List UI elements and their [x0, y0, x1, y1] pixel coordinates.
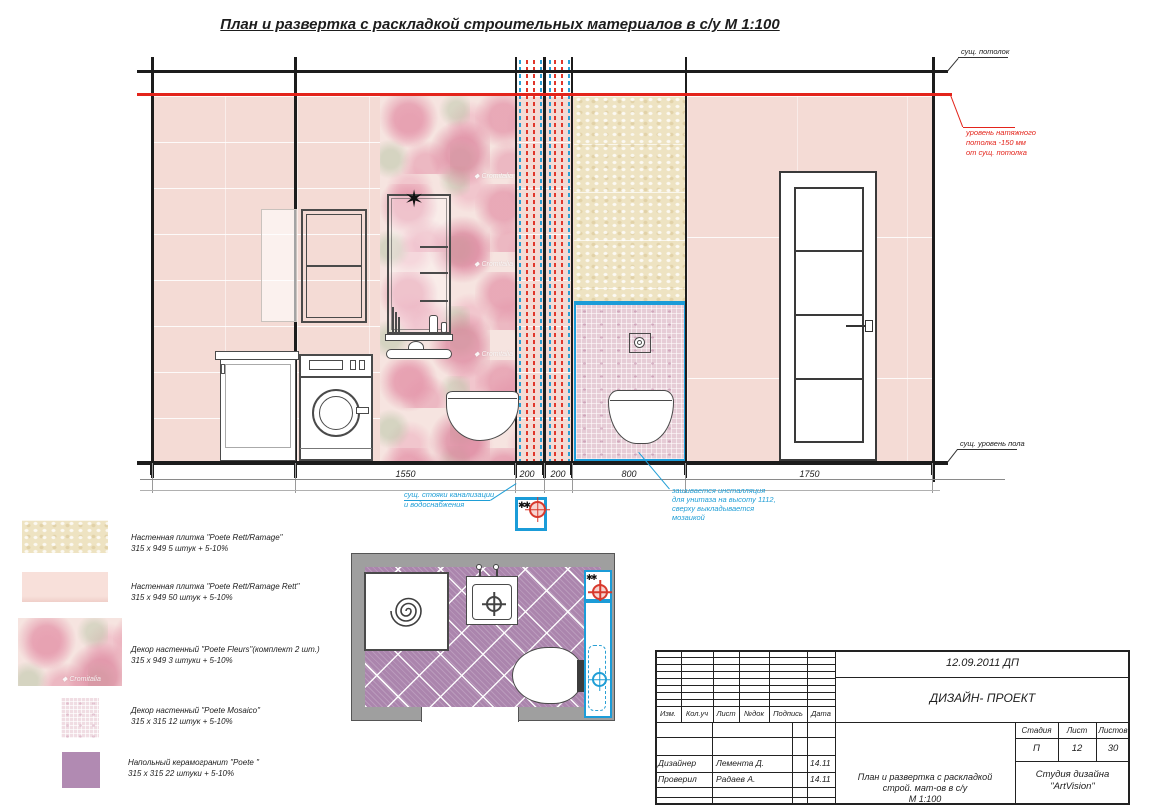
wall-cabinet-shelf	[307, 265, 361, 267]
tb-studio-name: Студия дизайна	[1015, 770, 1130, 781]
tb-studio-name: "ArtVision"	[1015, 782, 1130, 793]
legend-label: Декор настенный "Poete Mosaico"	[131, 706, 260, 715]
base-cabinet-handle	[221, 364, 225, 374]
tap-handle-icon	[476, 564, 482, 570]
plan-toilet	[512, 647, 584, 704]
tb-line	[655, 787, 835, 788]
toilet-rim-line	[610, 400, 672, 401]
mirror-shelf-line	[420, 272, 448, 274]
blue-target-icon	[592, 672, 607, 687]
water-pipe-line	[549, 60, 551, 461]
tb-line	[1015, 761, 1130, 762]
toiletry-bottle	[429, 315, 438, 333]
door-panel-divider	[796, 314, 862, 316]
washer-door-inner	[319, 396, 353, 430]
tb-line	[835, 677, 1130, 678]
wall-axis-line	[932, 57, 935, 482]
stack-symbols-icon: ✱✱	[586, 574, 595, 582]
legend-qty: 315 x 315 12 штук + 5-10%	[131, 717, 233, 726]
legend-swatch-rett	[22, 572, 108, 602]
water-pipe-line	[540, 60, 542, 461]
riser-axis-line	[561, 60, 563, 461]
beige-tile-zone	[574, 96, 686, 301]
tap-stem	[496, 569, 498, 577]
water-pipe-line	[519, 60, 521, 461]
toiletry-bottle	[441, 322, 447, 333]
tb-sheet-label: Лист	[1058, 726, 1096, 735]
flush-button-inner	[637, 340, 642, 345]
tb-sheets-label: Листов	[1096, 726, 1130, 735]
tb-line	[655, 722, 1130, 723]
leader-line	[947, 58, 959, 72]
stretch-ceiling-note: уровень натяжного	[966, 129, 1036, 138]
leader-line	[958, 57, 1008, 58]
tb-designer-date: 14.11	[810, 759, 831, 769]
dim-label: 800	[572, 469, 686, 479]
tb-line	[655, 657, 835, 658]
tap-stem	[479, 569, 481, 577]
dimension-line	[140, 490, 940, 491]
toiletry-bottle	[398, 317, 400, 333]
tb-col-header: Изм.	[655, 710, 681, 719]
wall-axis-line	[685, 57, 687, 478]
tb-doc-title: строй. мат-ов в с/у	[835, 783, 1015, 793]
dim-label: 1750	[686, 469, 933, 479]
installation-note: мозаикой	[672, 514, 705, 523]
washer-drum-icon	[378, 583, 434, 639]
tb-line	[655, 706, 835, 707]
tb-col-header: №док	[739, 710, 769, 719]
sparkle-icon: ✶	[404, 186, 424, 214]
tap-handle-icon	[493, 564, 499, 570]
stretch-ceiling-note: потолка -150 мм	[966, 139, 1026, 148]
tb-line	[655, 685, 835, 686]
washer-button	[350, 360, 356, 370]
leader-line	[957, 449, 1017, 450]
toiletry-bottle	[392, 307, 394, 333]
door-handle-lever	[846, 325, 866, 327]
tb-line	[792, 722, 793, 805]
stacks-note: сущ. стояки канализации	[404, 491, 494, 500]
faucet-cross-icon	[486, 596, 502, 612]
dim-extension-line	[152, 463, 153, 493]
stretch-ceiling-line	[137, 93, 952, 96]
riser-axis-line	[533, 60, 535, 461]
stretch-ceiling-note: от сущ. потолка	[966, 149, 1027, 158]
base-cabinet-inner	[225, 364, 291, 448]
legend-qty: 315 x 949 50 штук + 5-10%	[131, 593, 233, 602]
tb-col-header: Лист	[713, 710, 739, 719]
dim-label: 1550	[295, 469, 516, 479]
legend-label: Настенная плитка "Poete Rett/Ramage Rett…	[131, 582, 299, 591]
wall-axis-line	[151, 57, 154, 478]
legend-swatch-mosaico	[61, 698, 99, 738]
tb-line	[655, 678, 835, 679]
legend-label: Напольный керамогранит "Poete "	[128, 758, 259, 767]
legend-label: Настенная плитка "Poete Rett/Ramage"	[131, 533, 283, 542]
tb-line	[655, 755, 835, 756]
leader-line-blue	[404, 500, 490, 501]
red-target-icon	[592, 584, 608, 600]
floor-note: сущ. уровень пола	[960, 440, 1025, 449]
mirror-inner	[391, 198, 447, 330]
tb-sheet-value: 12	[1058, 744, 1096, 755]
stacks-note: и водоснабжения	[404, 501, 464, 510]
tb-designer-role: Дизайнер	[658, 759, 696, 769]
tb-checker-role: Проверил	[658, 775, 697, 785]
drawing-sheet: План и развертка с раскладкой строительн…	[0, 0, 1155, 811]
tile-watermark: ◆ Cromitalia	[62, 675, 101, 683]
legend-qty: 315 x 949 5 штук + 5-10%	[131, 544, 228, 553]
washer-latch	[356, 407, 369, 414]
lower-shelf	[386, 349, 452, 359]
dim-label: 200	[544, 469, 572, 479]
page-title: План и развертка с раскладкой строительн…	[140, 16, 860, 33]
washer-panel-line	[300, 376, 372, 378]
tb-designer-name: Лемента Д.	[716, 759, 764, 769]
riser-axis-line	[526, 60, 528, 461]
tile-watermark: ◆ Cromitalia	[437, 172, 513, 180]
tb-stage-label: Стадия	[1015, 726, 1058, 735]
tb-line	[807, 650, 808, 805]
mirror-shelf-line	[420, 246, 448, 248]
tb-col-header: Подпись	[769, 710, 807, 719]
legend-qty: 315 x 315 22 штуки + 5-10%	[128, 769, 234, 778]
tb-line	[655, 772, 835, 773]
existing-ceiling-line	[137, 70, 948, 73]
washer-base-line	[300, 448, 372, 449]
washer-button	[359, 360, 365, 370]
red-target-icon	[529, 501, 546, 518]
tb-checker-date: 14.11	[810, 775, 831, 785]
tb-line	[655, 797, 835, 798]
plan-door-opening	[421, 707, 519, 722]
tb-project-name: ДИЗАЙН- ПРОЕКТ	[835, 692, 1130, 706]
tb-line	[655, 671, 835, 672]
wall-axis-line	[543, 57, 546, 478]
leader-line	[947, 449, 958, 462]
tb-line	[655, 699, 835, 700]
water-pipe-line	[568, 60, 570, 461]
legend-qty: 315 x 949 3 штуки + 5-10%	[131, 656, 233, 665]
tb-line	[712, 722, 713, 805]
riser-axis-line	[554, 60, 556, 461]
washer-display	[309, 360, 343, 370]
wall-panel	[261, 209, 297, 322]
tb-doc-title: План и развертка с раскладкой	[835, 772, 1015, 782]
tb-line	[655, 737, 835, 738]
tb-line	[655, 692, 835, 693]
door-handle-plate	[865, 320, 873, 332]
legend-label: Декор настенный "Poete Fleurs"(комплект …	[131, 645, 320, 654]
door-panel-divider	[796, 378, 862, 380]
tb-sheets-value: 30	[1096, 744, 1130, 755]
tb-checker-name: Радаев А.	[716, 775, 755, 785]
tb-col-header: Кол.уч	[681, 710, 713, 719]
wall-axis-line	[571, 57, 573, 478]
door-panel-divider	[796, 250, 862, 252]
leader-line-red	[950, 95, 963, 127]
washbasin-rim-line	[448, 398, 517, 399]
dim-label: 200	[510, 469, 544, 479]
toiletry-bottle	[395, 312, 397, 333]
tb-doc-title: М 1:100	[835, 794, 1015, 804]
tb-line	[1015, 738, 1130, 739]
legend-swatch-ramage	[22, 520, 108, 553]
mirror-shelf	[385, 334, 453, 341]
ceiling-note: сущ. потолок	[961, 48, 1009, 57]
tb-stage-value: П	[1015, 744, 1058, 755]
tb-date-stamp: 12.09.2011 ДП	[835, 657, 1130, 670]
legend-swatch-floor	[62, 752, 100, 788]
tb-line	[655, 664, 835, 665]
tb-col-header: Дата	[807, 710, 835, 719]
mirror-shelf-line	[420, 300, 448, 302]
